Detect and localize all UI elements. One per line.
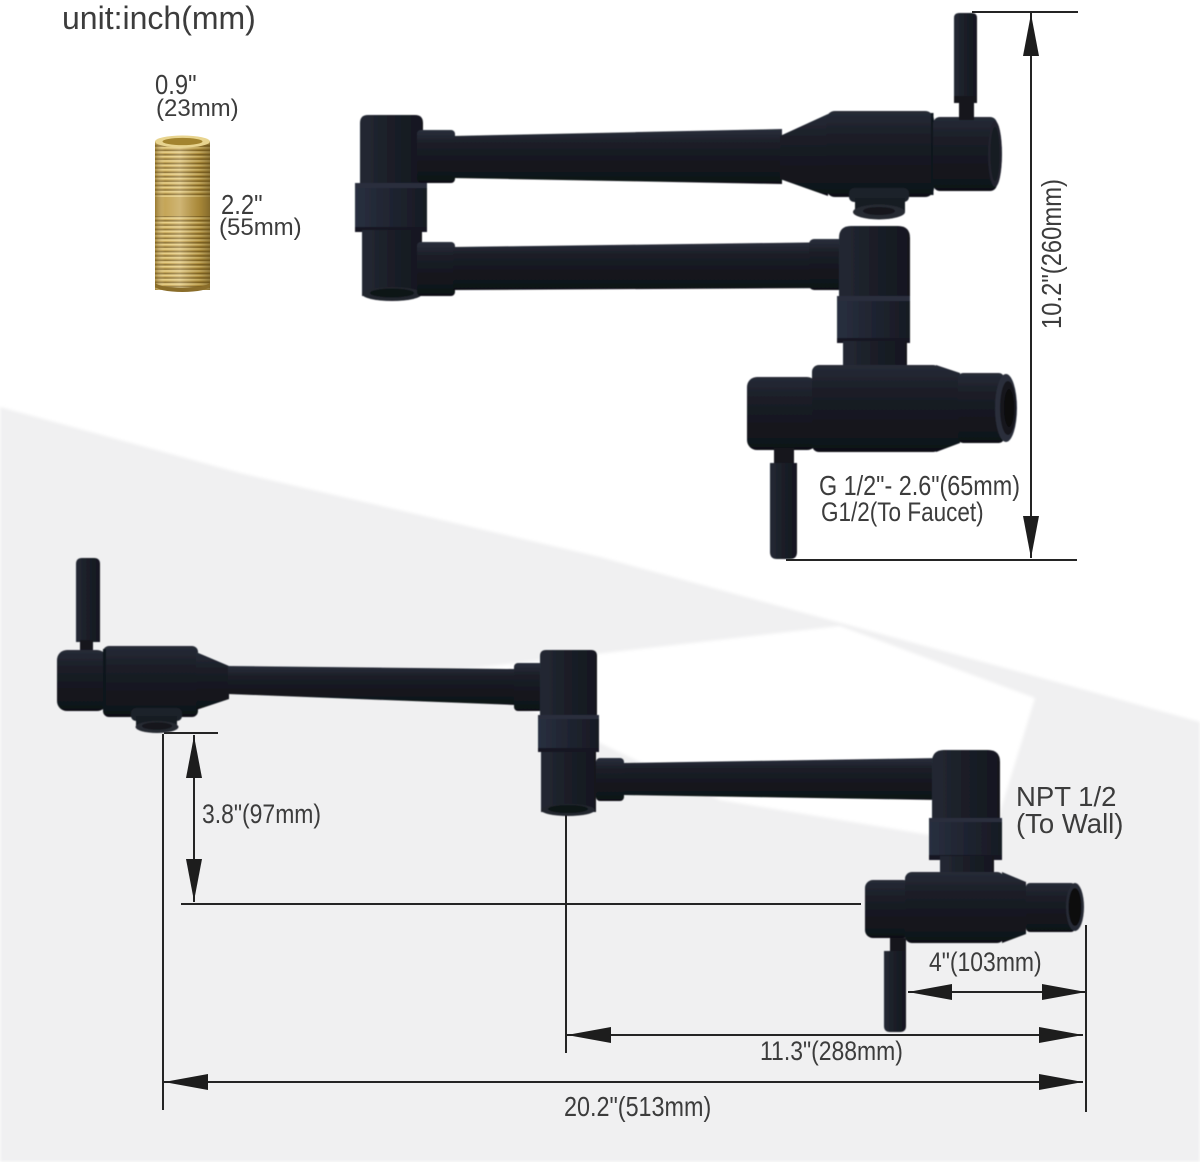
svg-text:4"(103mm): 4"(103mm) bbox=[929, 947, 1042, 977]
svg-text:(55mm): (55mm) bbox=[219, 214, 302, 241]
svg-text:10.2"(260mm): 10.2"(260mm) bbox=[1035, 179, 1067, 329]
svg-text:unit:inch(mm): unit:inch(mm) bbox=[62, 0, 256, 36]
svg-text:G 1/2"- 2.6"(65mm): G 1/2"- 2.6"(65mm) bbox=[819, 471, 1020, 501]
svg-text:20.2"(513mm): 20.2"(513mm) bbox=[564, 1092, 711, 1122]
svg-text:11.3"(288mm): 11.3"(288mm) bbox=[760, 1036, 903, 1066]
svg-text:(To Wall): (To Wall) bbox=[1016, 808, 1123, 839]
svg-text:G1/2(To Faucet): G1/2(To Faucet) bbox=[821, 498, 984, 527]
svg-text:(23mm): (23mm) bbox=[156, 95, 239, 122]
svg-text:3.8"(97mm): 3.8"(97mm) bbox=[202, 799, 321, 829]
